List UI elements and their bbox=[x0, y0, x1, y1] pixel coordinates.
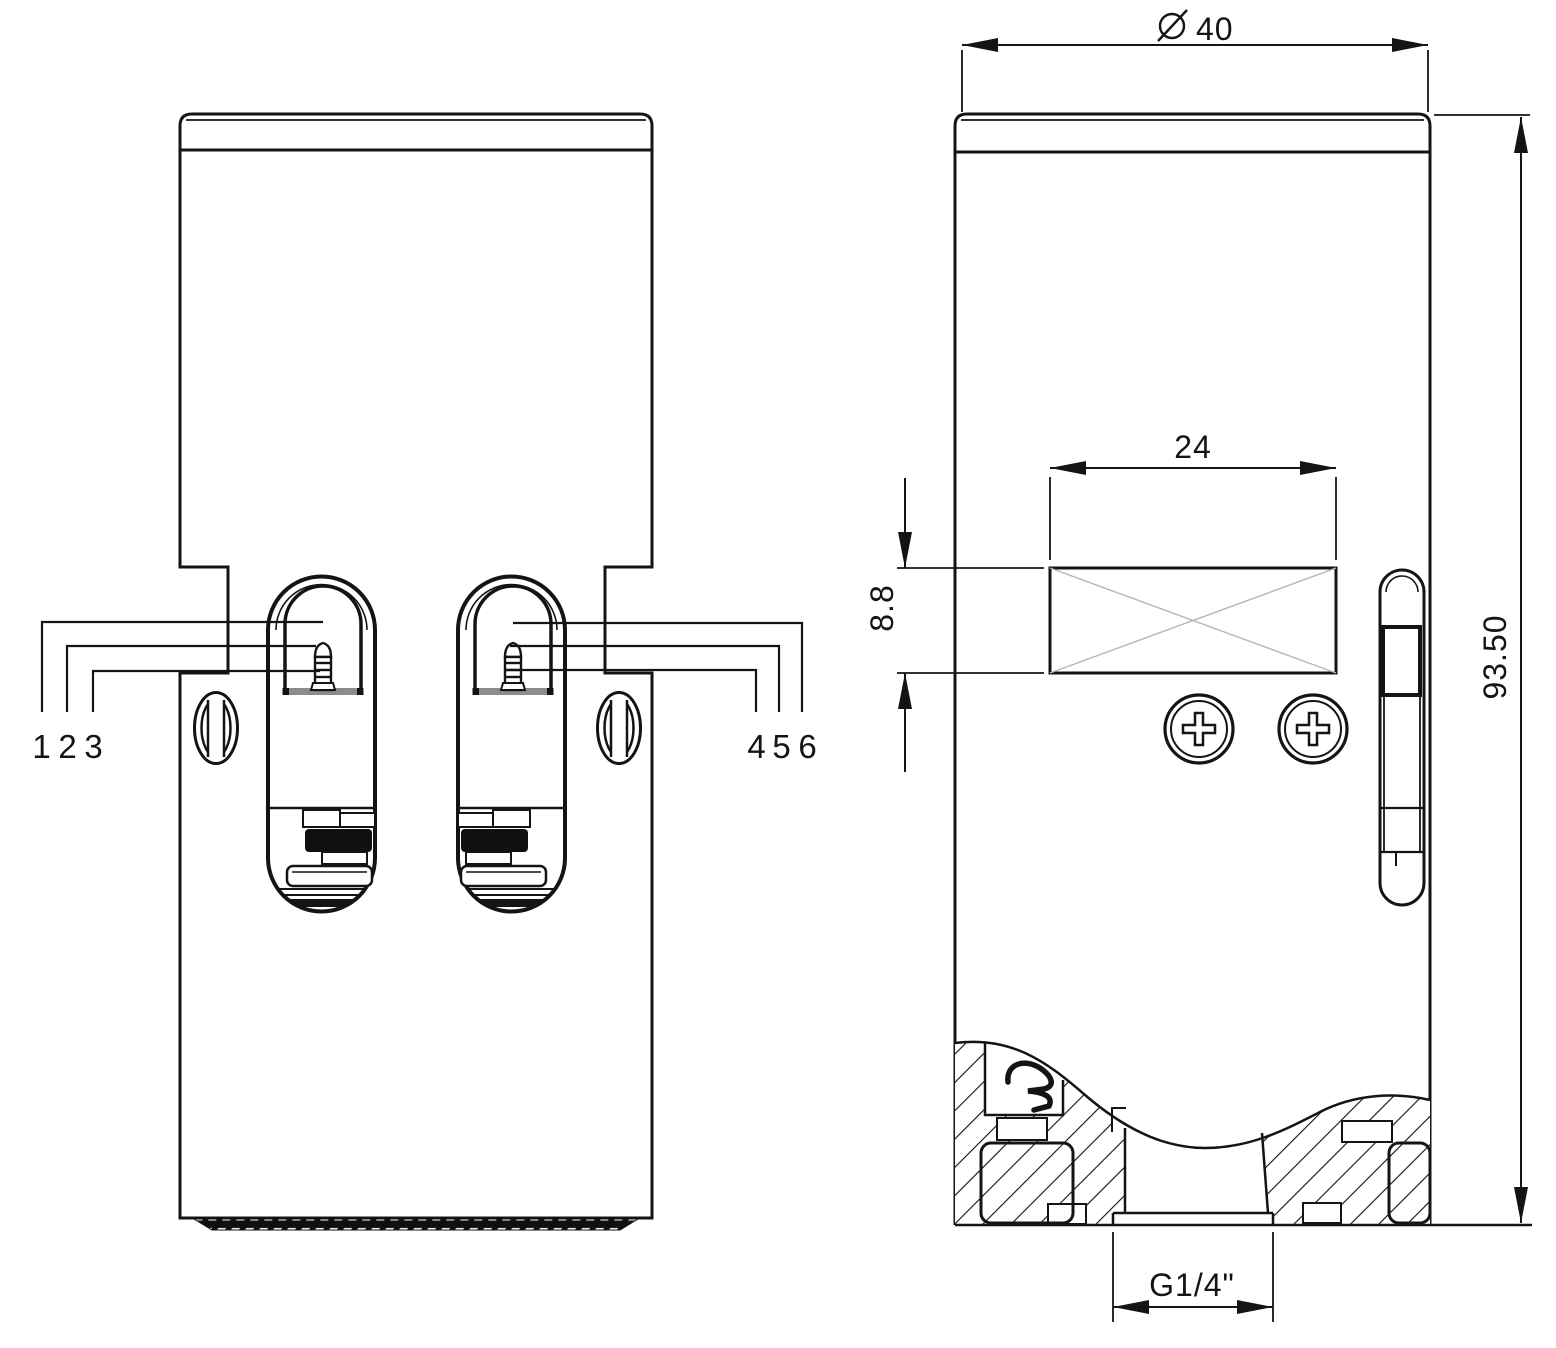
connector-slot-left bbox=[263, 577, 380, 913]
connector-stack-right bbox=[453, 808, 570, 912]
dim-diameter: 40 bbox=[962, 10, 1428, 112]
connector-pin-right bbox=[501, 643, 525, 690]
dim-overall-height-label: 93.50 bbox=[1477, 614, 1513, 699]
phillips-screw-right bbox=[1279, 695, 1347, 763]
section-back-view bbox=[955, 114, 1532, 1225]
screw-slot-oval-left bbox=[195, 693, 238, 764]
callout-6-label: 6 bbox=[798, 728, 817, 765]
front-top-cap bbox=[180, 114, 652, 150]
callout-4-label: 4 bbox=[747, 728, 766, 765]
back-top-cap bbox=[955, 114, 1430, 152]
mount-insert-rect bbox=[1050, 568, 1336, 673]
front-body-outline bbox=[180, 150, 652, 1218]
dim-thread-label: G1/4" bbox=[1149, 1267, 1235, 1303]
section-base bbox=[955, 1042, 1532, 1225]
connector-stack-left bbox=[263, 808, 380, 912]
dim-overall-height: 93.50 bbox=[1434, 115, 1530, 1223]
screw-slot-oval-right bbox=[598, 693, 641, 764]
callout-5-label: 5 bbox=[772, 728, 791, 765]
callout-leader-1 bbox=[42, 622, 323, 712]
drawing-canvas: 40 93.50 24 8.8 bbox=[0, 0, 1556, 1348]
callout-leader-2 bbox=[67, 646, 316, 712]
dim-thread: G1/4" bbox=[1113, 1232, 1273, 1322]
callout-leader-6 bbox=[513, 623, 802, 712]
dim-slot-height-label: 8.8 bbox=[864, 584, 900, 631]
side-slot-edge bbox=[1380, 570, 1424, 905]
dim-slot-width: 24 bbox=[1050, 429, 1336, 560]
phillips-screw-left bbox=[1165, 695, 1233, 763]
callout-1-label: 1 bbox=[32, 728, 51, 765]
connector-pin-left bbox=[311, 643, 335, 690]
callout-3-label: 3 bbox=[84, 728, 103, 765]
callout-2-label: 2 bbox=[58, 728, 77, 765]
diameter-symbol-icon bbox=[1158, 10, 1187, 41]
knurl-band bbox=[194, 1219, 638, 1230]
dim-slot-width-label: 24 bbox=[1174, 429, 1212, 465]
dim-diameter-label: 40 bbox=[1196, 11, 1234, 47]
callouts: 1 2 3 4 5 6 bbox=[32, 622, 817, 765]
connector-slot-right bbox=[453, 577, 570, 913]
